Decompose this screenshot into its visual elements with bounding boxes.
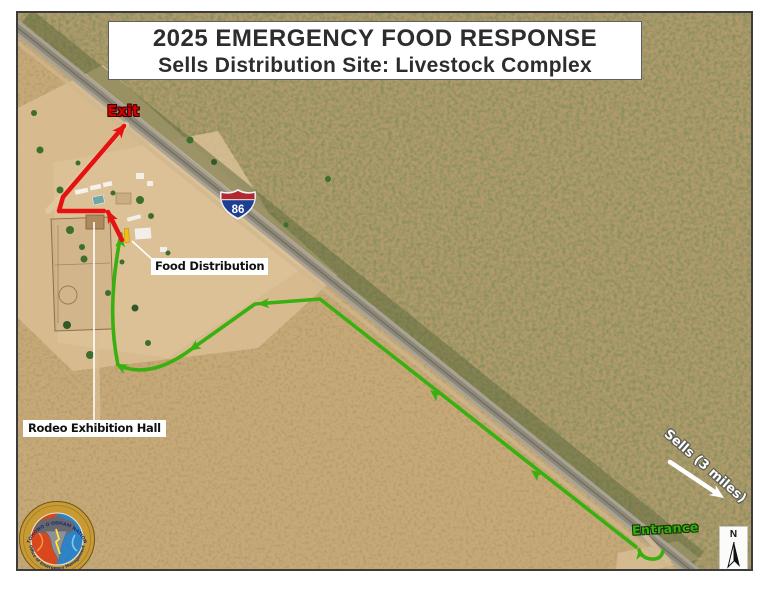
exit-label: Exit	[107, 102, 139, 120]
map-title-box: 2025 EMERGENCY FOOD RESPONSE Sells Distr…	[108, 21, 642, 80]
map-page: 86 TOHONO O'ODHAM NATION Office	[0, 0, 768, 593]
north-arrow-box: N	[719, 526, 748, 571]
north-label: N	[730, 529, 737, 540]
map-title-line1: 2025 EMERGENCY FOOD RESPONSE	[109, 24, 641, 54]
food-distribution-label: Food Distribution	[151, 258, 268, 275]
satellite-terrain: 86 TOHONO O'ODHAM NATION Office	[18, 13, 751, 569]
emergency-seal: TOHONO O'ODHAM NATION Office of Emergenc…	[20, 502, 95, 570]
map-canvas: 86 TOHONO O'ODHAM NATION Office	[16, 11, 753, 571]
map-title-line2: Sells Distribution Site: Livestock Compl…	[109, 54, 641, 78]
food-distribution-marker	[124, 228, 129, 242]
i86-number: 86	[232, 204, 245, 216]
north-arrow-icon	[725, 540, 743, 570]
rodeo-hall-label: Rodeo Exhibition Hall	[23, 420, 166, 437]
